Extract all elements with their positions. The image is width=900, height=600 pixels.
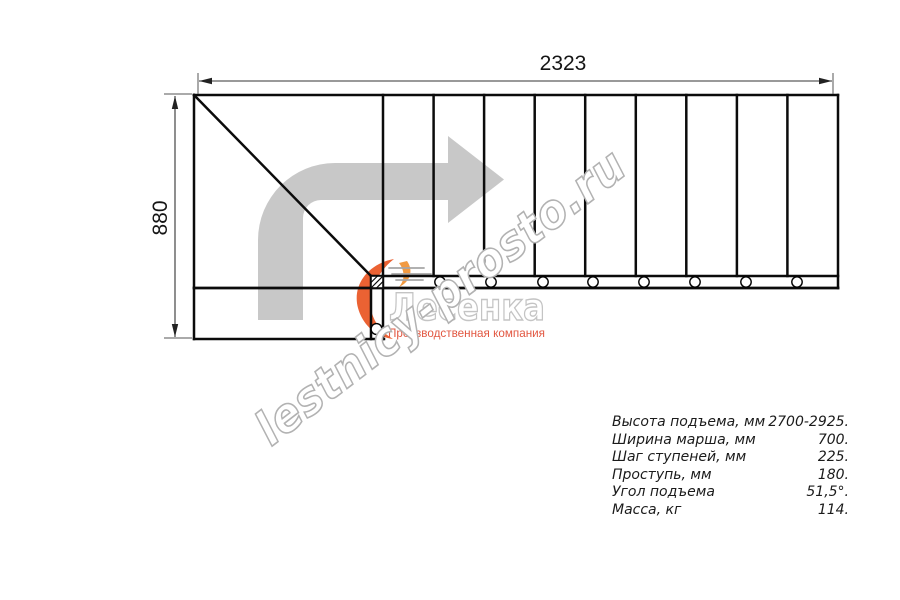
spec-label: Масса, кг	[612, 502, 681, 520]
spec-label: Проступь, мм	[612, 467, 712, 485]
connector-circle	[690, 277, 700, 287]
specs-table: Высота подъема, мм 2700-2925. Ширина мар…	[612, 414, 849, 519]
spec-row-step-pitch: Шаг ступеней, мм 225.	[612, 449, 849, 467]
connector-circle	[588, 277, 598, 287]
spec-value: 2700-2925.	[768, 414, 849, 432]
connector-circle	[639, 277, 649, 287]
spec-row-angle: Угол подъема 51,5°.	[612, 484, 849, 502]
spec-value: 180.	[818, 467, 849, 485]
dimension-value-width: 2323	[540, 52, 587, 75]
spec-row-height: Высота подъема, мм 2700-2925.	[612, 414, 849, 432]
drawing-canvas: Лесенка Производственная компания	[0, 0, 900, 600]
spec-label: Угол подъема	[612, 484, 715, 502]
connector-circle	[741, 277, 751, 287]
spec-value: 700.	[818, 432, 849, 450]
spec-label: Ширина марша, мм	[612, 432, 756, 450]
spec-value: 225.	[818, 449, 849, 467]
connector-circle	[538, 277, 548, 287]
hatch-marker	[371, 276, 383, 288]
spec-row-tread: Проступь, мм 180.	[612, 467, 849, 485]
spec-row-march-width: Ширина марша, мм 700.	[612, 432, 849, 450]
connector-circle	[792, 277, 802, 287]
spec-label: Шаг ступеней, мм	[612, 449, 746, 467]
dimension-value-depth: 880	[149, 200, 172, 235]
spec-row-mass: Масса, кг 114.	[612, 502, 849, 520]
spec-value: 114.	[818, 502, 849, 520]
spec-value: 51,5°.	[806, 484, 849, 502]
spec-label: Высота подъема, мм	[612, 414, 765, 432]
